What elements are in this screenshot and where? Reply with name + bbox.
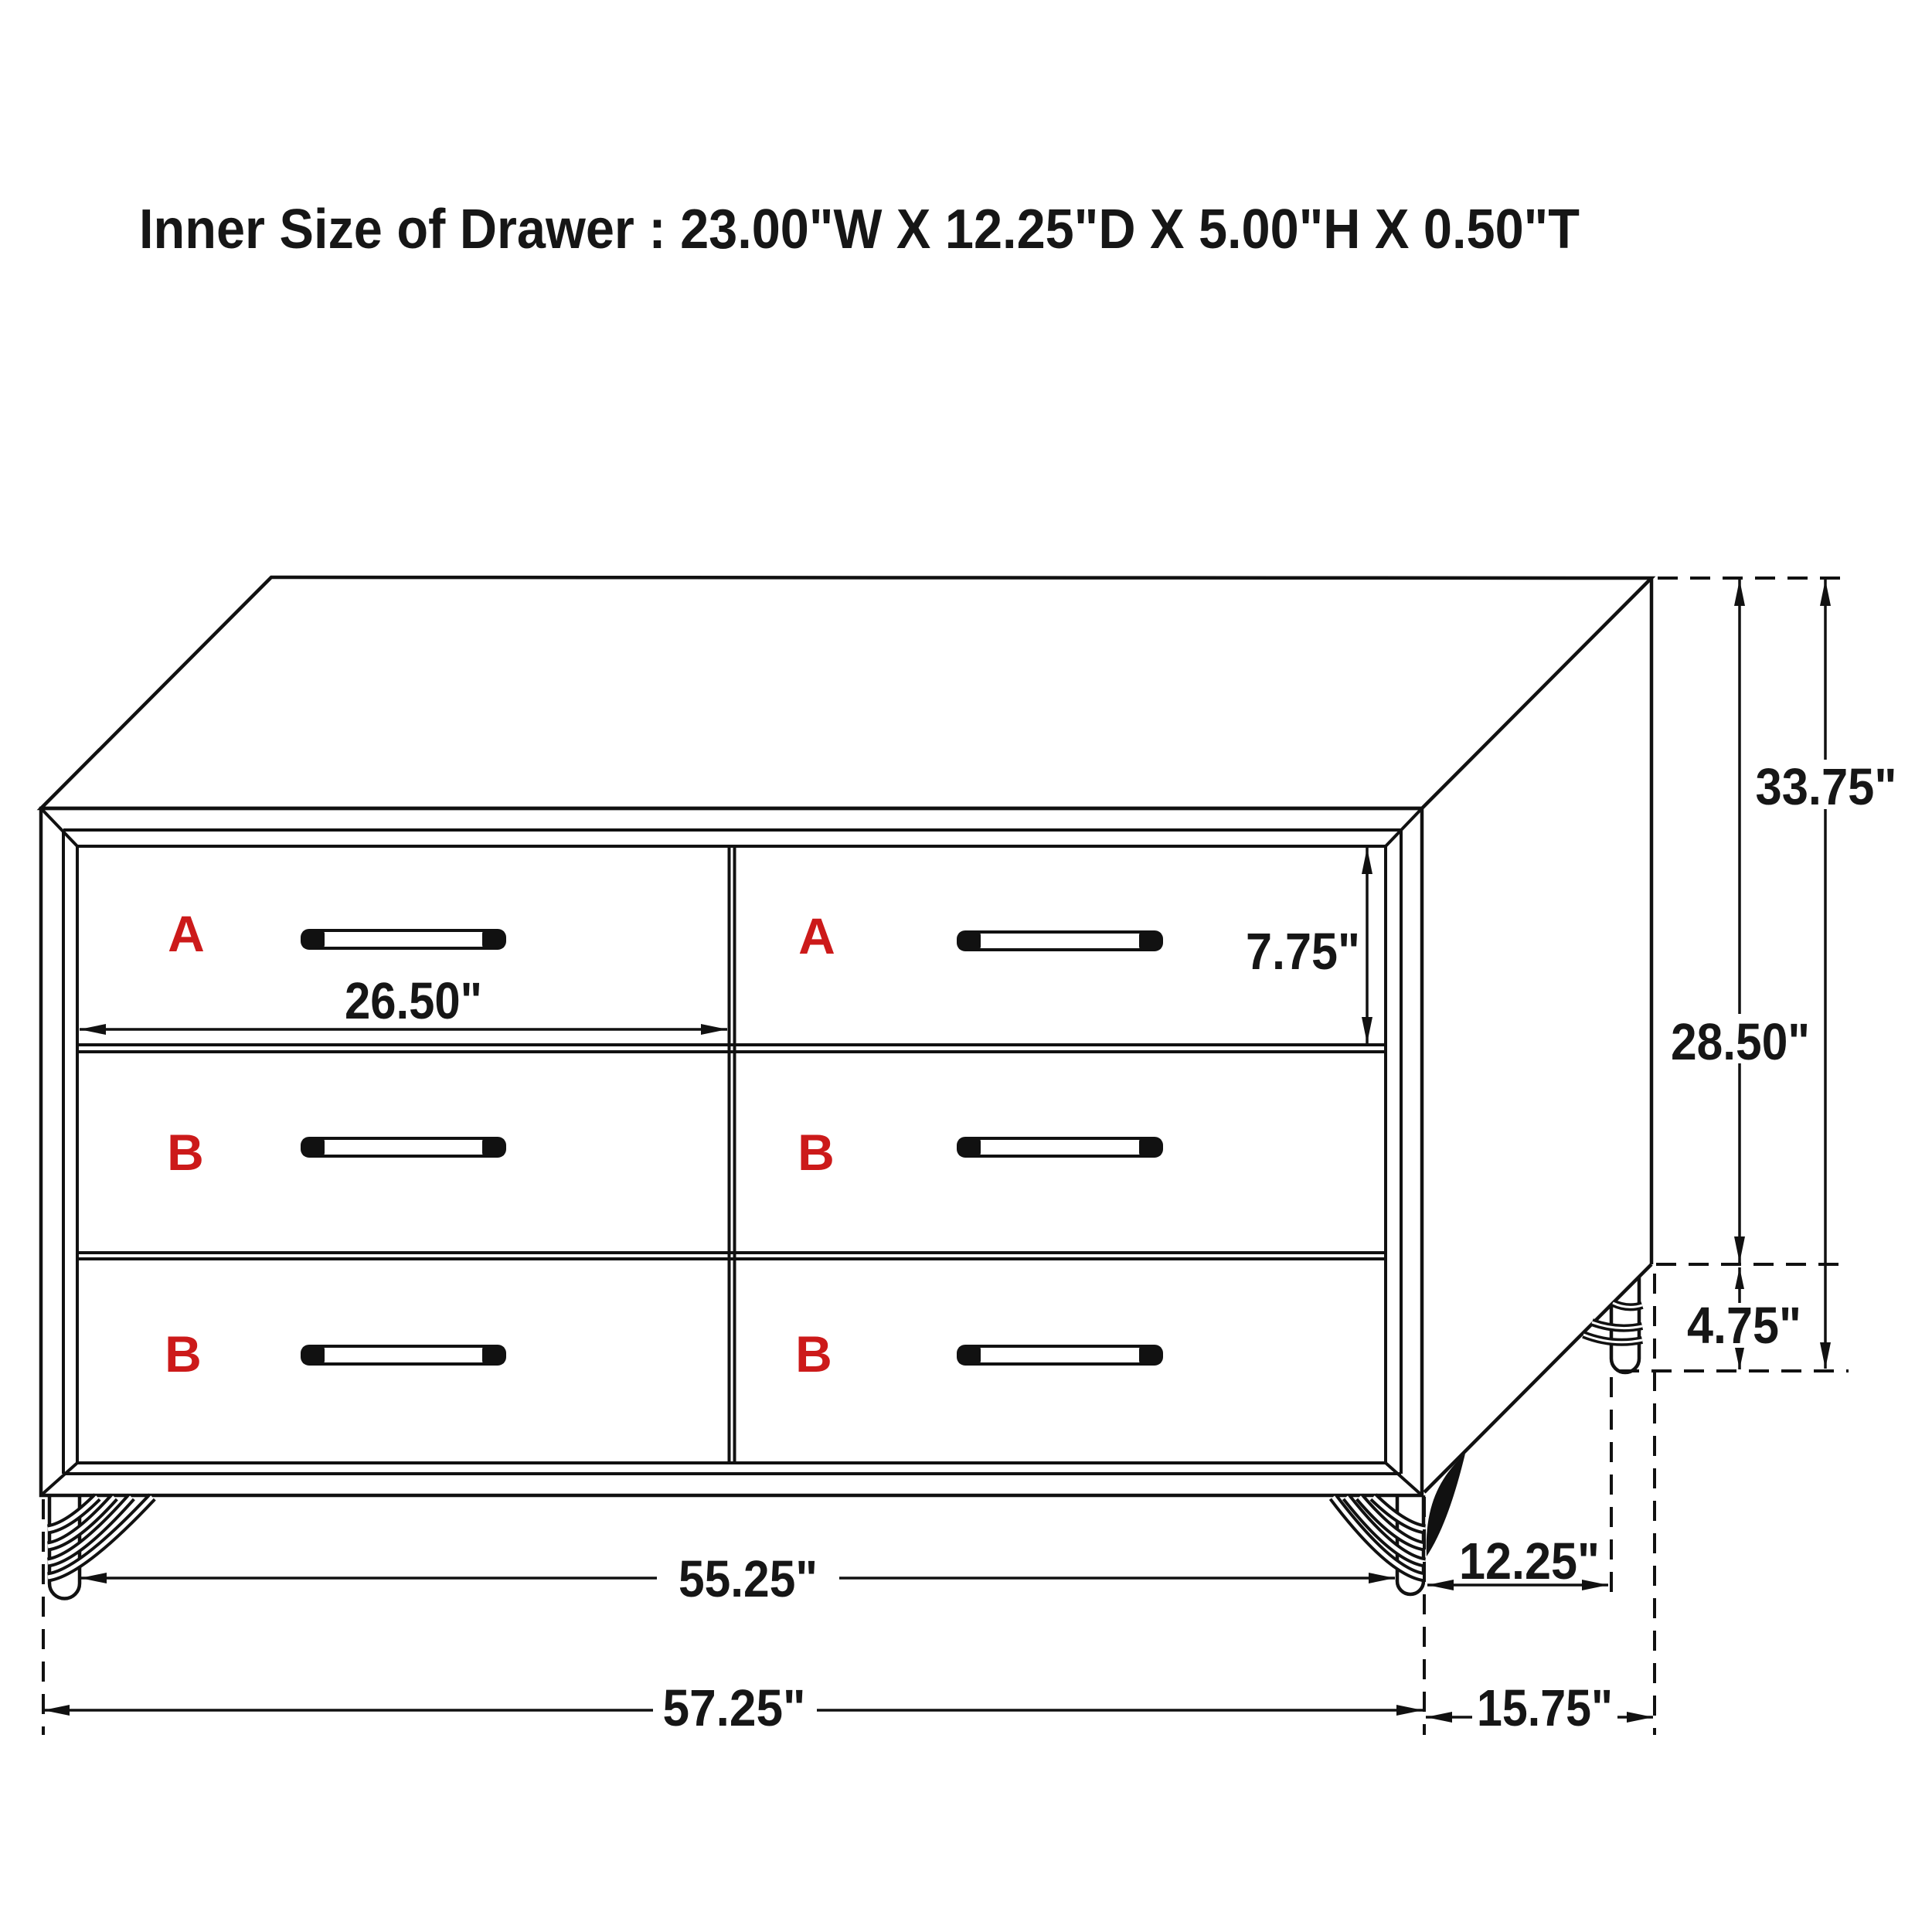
svg-text:B: B xyxy=(798,1124,835,1181)
svg-text:B: B xyxy=(167,1124,204,1181)
svg-text:55.25": 55.25" xyxy=(679,1550,818,1608)
svg-text:26.50": 26.50" xyxy=(345,972,482,1030)
svg-text:12.25": 12.25" xyxy=(1459,1532,1600,1590)
svg-text:57.25": 57.25" xyxy=(663,1679,806,1737)
svg-text:7.75": 7.75" xyxy=(1246,923,1360,981)
svg-text:Inner Size of Drawer : 23.00"W: Inner Size of Drawer : 23.00"W X 12.25"D… xyxy=(139,199,1580,260)
svg-text:B: B xyxy=(165,1325,202,1383)
svg-text:15.75": 15.75" xyxy=(1477,1679,1613,1737)
svg-text:A: A xyxy=(798,907,835,964)
svg-text:33.75": 33.75" xyxy=(1756,758,1897,816)
svg-text:28.50": 28.50" xyxy=(1671,1013,1810,1071)
svg-text:B: B xyxy=(795,1325,832,1383)
svg-text:A: A xyxy=(168,905,205,962)
svg-text:4.75": 4.75" xyxy=(1687,1297,1801,1355)
